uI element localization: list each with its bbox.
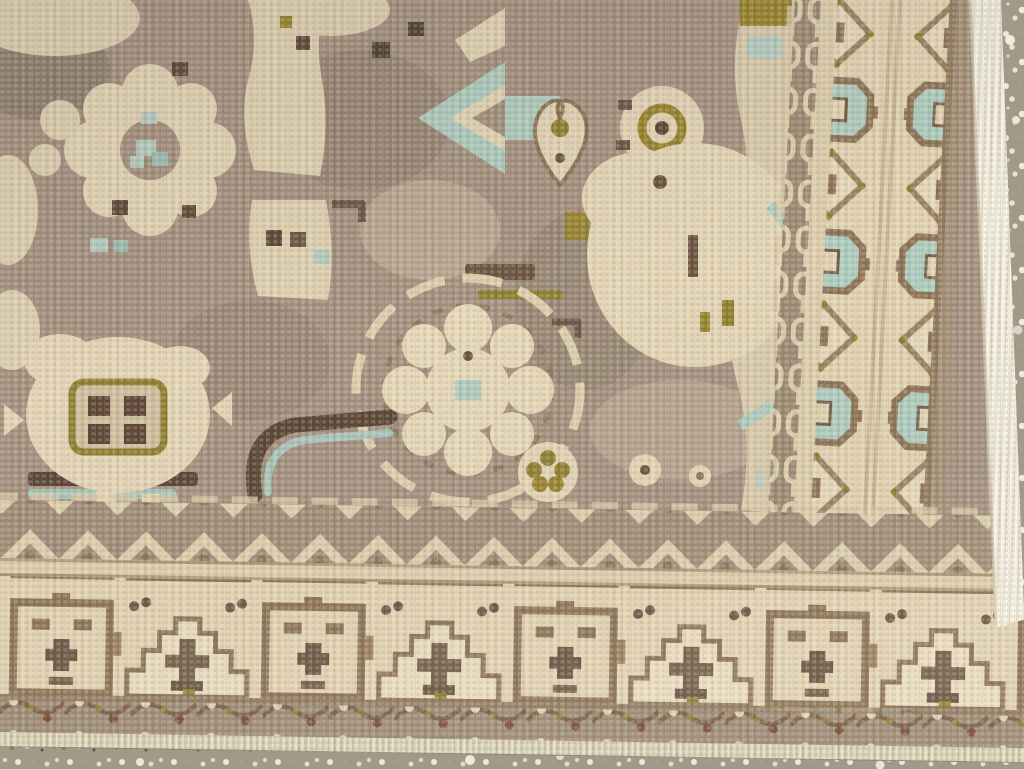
rug bbox=[0, 0, 1024, 769]
rug-photo-svg: Close-up photograph of the bottom-right … bbox=[0, 0, 1024, 769]
rug-photograph: Close-up photograph of the bottom-right … bbox=[0, 0, 1024, 769]
wool-texture-overlay bbox=[0, 0, 1024, 769]
